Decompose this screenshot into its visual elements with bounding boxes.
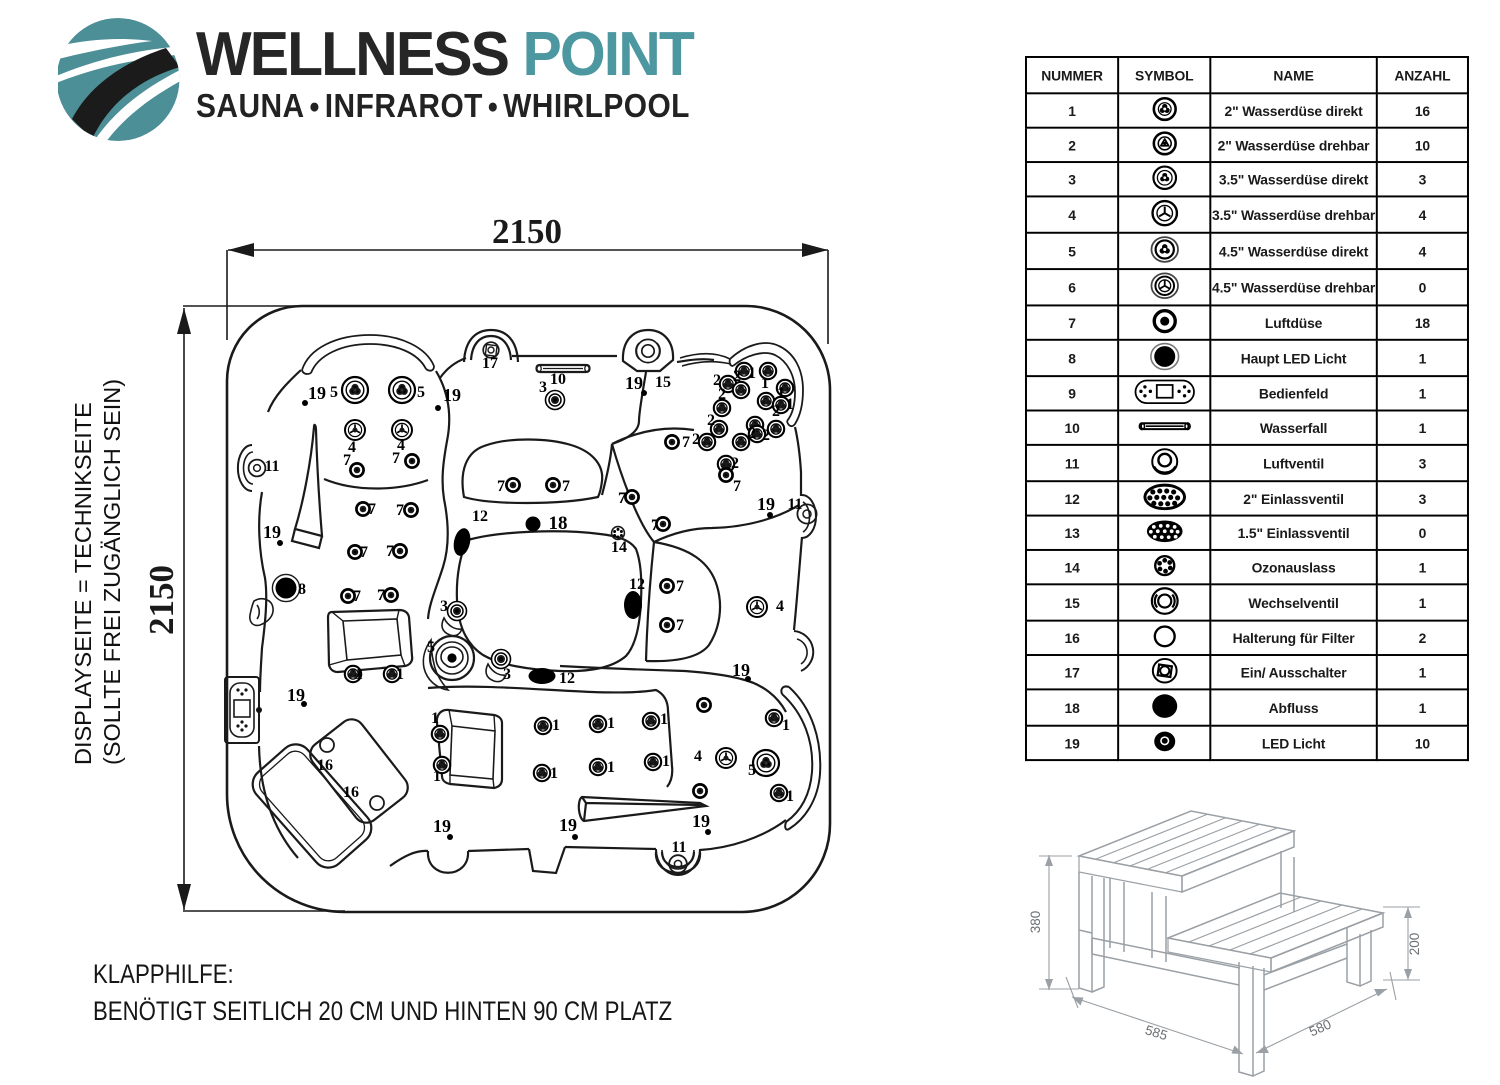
svg-text:5: 5: [330, 384, 338, 401]
svg-text:1: 1: [433, 768, 441, 785]
svg-text:8: 8: [298, 581, 306, 598]
svg-text:12: 12: [629, 576, 645, 593]
svg-text:19: 19: [732, 660, 750, 680]
svg-text:2: 2: [772, 403, 780, 420]
svg-text:19: 19: [757, 494, 775, 514]
svg-text:19: 19: [287, 685, 305, 705]
svg-text:14: 14: [611, 539, 627, 556]
svg-text:7: 7: [562, 478, 570, 495]
svg-text:1: 1: [777, 385, 785, 402]
svg-text:7: 7: [368, 501, 376, 518]
svg-text:19: 19: [692, 811, 710, 831]
svg-text:7: 7: [360, 544, 368, 561]
svg-text:7: 7: [377, 587, 385, 604]
svg-text:1: 1: [396, 666, 404, 683]
svg-text:12: 12: [559, 670, 575, 687]
svg-text:5: 5: [748, 762, 756, 779]
svg-text:4: 4: [776, 598, 784, 615]
svg-text:1: 1: [660, 711, 668, 728]
svg-text:7: 7: [733, 478, 741, 495]
svg-text:7: 7: [651, 517, 659, 534]
svg-text:2150: 2150: [142, 565, 181, 635]
svg-text:7: 7: [386, 543, 394, 560]
svg-text:15: 15: [655, 374, 671, 391]
svg-text:11: 11: [264, 458, 279, 475]
svg-text:7: 7: [676, 578, 684, 595]
svg-text:7: 7: [343, 452, 351, 469]
svg-text:11: 11: [671, 839, 686, 856]
svg-text:2: 2: [733, 368, 741, 385]
svg-text:380: 380: [1028, 911, 1043, 934]
svg-text:1: 1: [355, 666, 363, 683]
svg-text:7: 7: [682, 434, 690, 451]
svg-text:19: 19: [263, 522, 281, 542]
svg-text:2: 2: [718, 386, 726, 403]
svg-text:7: 7: [676, 617, 684, 634]
svg-text:1: 1: [607, 715, 615, 732]
svg-text:4: 4: [694, 748, 702, 765]
svg-text:7: 7: [353, 588, 361, 605]
svg-text:2: 2: [731, 455, 739, 472]
svg-text:1: 1: [552, 717, 560, 734]
svg-text:10: 10: [550, 371, 566, 388]
svg-text:1: 1: [431, 710, 439, 727]
svg-text:17: 17: [482, 355, 498, 372]
svg-text:16: 16: [343, 784, 359, 801]
svg-text:2: 2: [707, 412, 715, 429]
svg-text:1: 1: [662, 753, 670, 770]
svg-text:1: 1: [607, 759, 615, 776]
svg-text:7: 7: [618, 490, 626, 507]
svg-text:19: 19: [433, 816, 451, 836]
svg-text:585: 585: [1143, 1022, 1169, 1043]
svg-text:7: 7: [396, 502, 404, 519]
svg-text:1: 1: [761, 375, 769, 392]
svg-text:18: 18: [549, 513, 568, 534]
svg-text:16: 16: [317, 757, 333, 774]
svg-text:2: 2: [748, 425, 756, 442]
svg-text:5: 5: [417, 384, 425, 401]
svg-text:1: 1: [786, 396, 794, 413]
svg-text:2: 2: [692, 431, 700, 448]
svg-text:7: 7: [497, 478, 505, 495]
svg-text:1: 1: [748, 365, 756, 382]
svg-text:1: 1: [550, 765, 558, 782]
svg-text:12: 12: [472, 508, 488, 525]
svg-text:3: 3: [503, 666, 511, 683]
svg-text:2150: 2150: [492, 212, 562, 251]
svg-text:3: 3: [539, 379, 547, 396]
svg-text:200: 200: [1407, 933, 1422, 956]
svg-text:3: 3: [440, 598, 448, 615]
svg-text:19: 19: [559, 815, 577, 835]
svg-text:5: 5: [427, 639, 435, 656]
svg-text:1: 1: [786, 788, 794, 805]
svg-text:19: 19: [443, 385, 461, 405]
svg-text:7: 7: [392, 450, 400, 467]
svg-text:19: 19: [625, 373, 643, 393]
svg-text:2: 2: [762, 427, 770, 444]
svg-text:19: 19: [308, 383, 326, 403]
svg-text:1: 1: [782, 717, 790, 734]
svg-text:580: 580: [1307, 1016, 1334, 1039]
svg-text:11: 11: [787, 496, 802, 513]
